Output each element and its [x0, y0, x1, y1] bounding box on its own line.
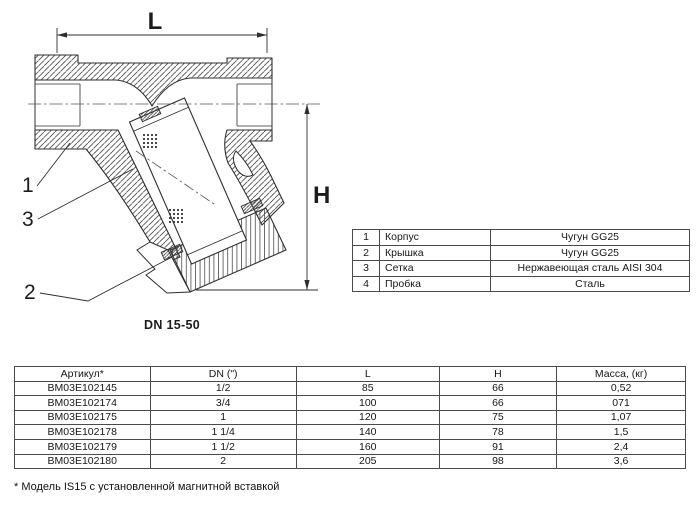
- table-row: BM03E1021751120751,07: [15, 410, 686, 425]
- table-row: BM03E1021791 1/2160912,4: [15, 439, 686, 454]
- part-number: 3: [353, 261, 380, 277]
- column-header: L: [296, 367, 439, 382]
- materials-table-body: 1КорпусЧугун GG252КрышкаЧугун GG253Сетка…: [353, 230, 690, 292]
- part-label-1: 1: [22, 174, 34, 197]
- l-cell: 100: [296, 396, 439, 411]
- strainer-screen: [130, 98, 247, 264]
- column-header: DN ("): [150, 367, 296, 382]
- part-name: Пробка: [380, 276, 491, 292]
- materials-row: 1КорпусЧугун GG25: [353, 230, 690, 246]
- part-material: Нержавеющая сталь AISI 304: [491, 261, 690, 277]
- l-cell: 120: [296, 410, 439, 425]
- dimensions-table-header-row: Артикул*DN (")LHМасса, (кг): [15, 367, 686, 382]
- part-label-3: 3: [22, 208, 34, 231]
- materials-row: 4ПробкаСталь: [353, 276, 690, 292]
- l-cell: 205: [296, 454, 439, 469]
- h-cell: 98: [439, 454, 556, 469]
- datasheet-page: L H 1 3 2 DN 15-50 1КорпусЧугун GG252Кры…: [0, 0, 700, 509]
- valve-body-top-wall: [35, 55, 272, 106]
- dn-cell: 2: [150, 454, 296, 469]
- article-cell: BM03E102180: [15, 454, 151, 469]
- materials-row: 3СеткаНержавеющая сталь AISI 304: [353, 261, 690, 277]
- dn-cell: 1: [150, 410, 296, 425]
- dn-cell: 3/4: [150, 396, 296, 411]
- l-cell: 140: [296, 425, 439, 440]
- part-name: Крышка: [380, 245, 491, 261]
- dimensions-table: Артикул*DN (")LHМасса, (кг) BM03E1021451…: [14, 366, 686, 469]
- materials-table: 1КорпусЧугун GG252КрышкаЧугун GG253Сетка…: [352, 229, 690, 292]
- arrow-l-left: [57, 32, 67, 37]
- article-cell: BM03E102174: [15, 396, 151, 411]
- h-cell: 66: [439, 396, 556, 411]
- column-header: Масса, (кг): [557, 367, 686, 382]
- part-number: 1: [353, 230, 380, 246]
- article-cell: BM03E102145: [15, 381, 151, 396]
- table-row: BM03E1021451/285660,52: [15, 381, 686, 396]
- table-row: BM03E1021743/410066071: [15, 396, 686, 411]
- table-row: BM03E1021781 1/4140781,5: [15, 425, 686, 440]
- dn-cell: 1/2: [150, 381, 296, 396]
- mass-cell: 071: [557, 396, 686, 411]
- mass-cell: 2,4: [557, 439, 686, 454]
- table-row: BM03E1021802205983,6: [15, 454, 686, 469]
- h-cell: 66: [439, 381, 556, 396]
- dimensions-table-body: BM03E1021451/285660,52BM03E1021743/41006…: [15, 381, 686, 469]
- materials-row: 2КрышкаЧугун GG25: [353, 245, 690, 261]
- arrow-h-top: [304, 104, 309, 114]
- h-cell: 91: [439, 439, 556, 454]
- footnote: * Модель IS15 с установленной магнитной …: [14, 481, 279, 493]
- mass-cell: 1,07: [557, 410, 686, 425]
- column-header: H: [439, 367, 556, 382]
- article-cell: BM03E102178: [15, 425, 151, 440]
- dim-label-l: L: [148, 8, 163, 35]
- part-label-2: 2: [24, 281, 36, 304]
- mass-cell: 0,52: [557, 381, 686, 396]
- dn-cell: 1 1/2: [150, 439, 296, 454]
- part-name: Сетка: [380, 261, 491, 277]
- h-cell: 75: [439, 410, 556, 425]
- dim-label-h: H: [313, 182, 330, 209]
- part-name: Корпус: [380, 230, 491, 246]
- valve-technical-drawing: L H 1 3 2 DN 15-50: [0, 0, 340, 348]
- arrow-l-right: [257, 32, 267, 37]
- part-material: Чугун GG25: [491, 230, 690, 246]
- column-header: Артикул*: [15, 367, 151, 382]
- part-material: Сталь: [491, 276, 690, 292]
- mass-cell: 3,6: [557, 454, 686, 469]
- part-number: 2: [353, 245, 380, 261]
- mass-cell: 1,5: [557, 425, 686, 440]
- part-number: 4: [353, 276, 380, 292]
- arrow-h-bottom: [304, 280, 309, 290]
- dn-cell: 1 1/4: [150, 425, 296, 440]
- l-cell: 85: [296, 381, 439, 396]
- article-cell: BM03E102175: [15, 410, 151, 425]
- article-cell: BM03E102179: [15, 439, 151, 454]
- part-material: Чугун GG25: [491, 245, 690, 261]
- h-cell: 78: [439, 425, 556, 440]
- drawing-caption: DN 15-50: [144, 318, 200, 332]
- l-cell: 160: [296, 439, 439, 454]
